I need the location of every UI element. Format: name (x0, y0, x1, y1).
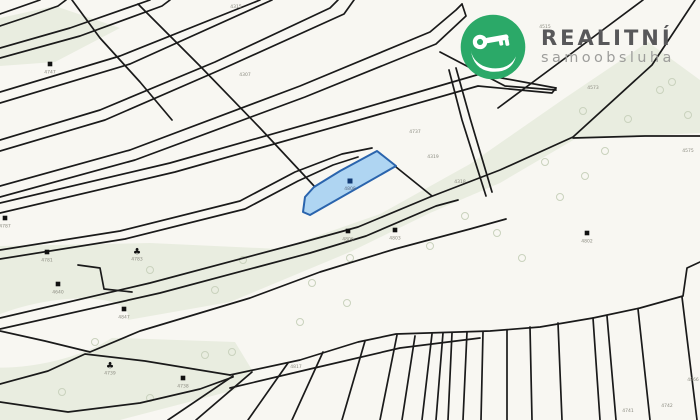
parcel-number-label: 4315 (230, 4, 242, 10)
marker-parcel-number: 4803 (389, 236, 401, 242)
parcel-number-label: 4817 (290, 364, 302, 370)
building-marker-icon (585, 231, 590, 236)
parcel-number-label: 4319 (427, 154, 439, 160)
building-marker-icon (346, 229, 351, 234)
map-viewport[interactable]: 4808474747874781464048474738480648034802… (0, 0, 700, 420)
marker-parcel-number: 4781 (41, 258, 53, 264)
brand-subtitle: samoobsluha (541, 51, 675, 66)
building-marker-icon (45, 250, 50, 255)
building-marker-icon (3, 216, 8, 221)
building-marker-icon (48, 62, 53, 67)
highlighted-parcel-number: 4808 (344, 186, 356, 192)
parcel-number-label: 4741 (622, 408, 634, 414)
marker-parcel-number: 4847 (118, 315, 130, 321)
marker-parcel-number: 4787 (0, 224, 11, 230)
marker-parcel-number: 4738 (177, 384, 189, 390)
brand-name: REALITNÍ (541, 27, 675, 49)
parcel-number-label: 4575 (682, 148, 694, 154)
marker-parcel-number: 4739 (104, 371, 116, 377)
building-marker-icon (393, 228, 398, 233)
parcel-number-label: 4307 (239, 72, 251, 78)
tree-marker-icon: ♣ (106, 362, 114, 372)
parcel-number-label: 4866 (687, 377, 699, 383)
building-marker-icon (56, 282, 61, 287)
marker-parcel-number: 4783 (131, 257, 143, 263)
building-marker-icon (181, 376, 186, 381)
marker-parcel-number: 4802 (581, 239, 593, 245)
highlighted-parcel-building-marker (348, 179, 353, 184)
marker-parcel-number: 4806 (342, 237, 354, 243)
marker-parcel-number: 4640 (52, 290, 64, 296)
parcel-number-label: 4737 (409, 129, 421, 135)
key-hand-icon (459, 13, 527, 81)
building-marker-icon (122, 307, 127, 312)
brand-logo: REALITNÍ samoobsluha (459, 13, 675, 81)
marker-parcel-number: 4747 (44, 70, 56, 76)
parcel-number-label: 4318 (454, 179, 466, 185)
parcel-number-label: 4742 (661, 403, 673, 409)
parcel-number-label: 4573 (587, 85, 599, 91)
tree-marker-icon: ♣ (133, 248, 141, 258)
